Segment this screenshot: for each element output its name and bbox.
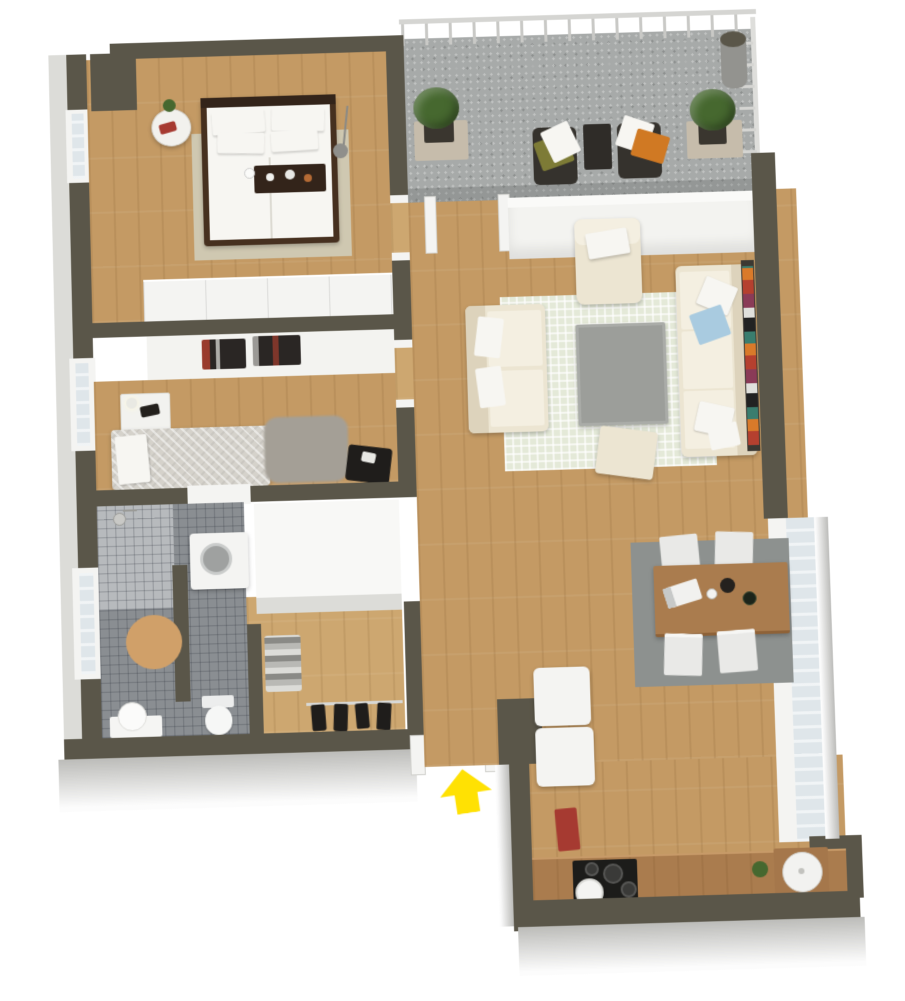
floorplan-canvas xyxy=(0,0,905,1001)
bed2-door-threshold xyxy=(394,347,413,399)
loveseat-pillow xyxy=(475,366,506,409)
entrance-arrow xyxy=(436,765,494,817)
bed1-pillow xyxy=(217,132,264,153)
balcony-side-table xyxy=(583,124,612,170)
bathroom-window-glass xyxy=(79,573,95,675)
bedroom1-window-glass xyxy=(72,114,85,179)
ottoman xyxy=(595,425,658,480)
south-wall-west-face xyxy=(58,749,417,812)
appliance-cabinet xyxy=(535,727,595,787)
bed2-pillow xyxy=(114,434,150,485)
appliance-cabinet xyxy=(533,666,591,726)
bedrooms-east-wall-mid xyxy=(392,260,412,340)
poster xyxy=(202,339,247,370)
hanging-garment xyxy=(376,702,391,730)
shower-area xyxy=(97,504,176,610)
bedroom2-window-glass xyxy=(75,363,90,446)
northwest-corner-block xyxy=(90,53,137,111)
balcony-door-post xyxy=(424,196,438,254)
bed1-pillow xyxy=(271,107,324,131)
apartment-plan xyxy=(0,0,905,1001)
bed1-door-threshold xyxy=(390,203,409,253)
red-bin xyxy=(554,807,580,851)
kitchen-south-wall-face xyxy=(518,917,866,976)
chair-with-clothes xyxy=(345,444,393,485)
folded-clothes-shelf xyxy=(264,635,302,692)
bed1-pillow xyxy=(271,129,319,153)
poster xyxy=(252,335,301,366)
hanging-garment xyxy=(333,704,348,732)
toilet-bowl xyxy=(205,705,233,735)
bedroom2-shag-rug xyxy=(264,415,350,483)
dining-chair xyxy=(664,633,703,676)
coat-alcove-wall xyxy=(247,624,264,734)
hanging-garment xyxy=(355,703,370,729)
hall-wardrobes xyxy=(254,498,402,600)
coffee-table xyxy=(575,322,668,426)
shower-arm xyxy=(123,509,137,511)
dining-chair xyxy=(717,628,759,673)
hanging-garment xyxy=(311,704,327,731)
loveseat-pillow xyxy=(474,316,504,358)
